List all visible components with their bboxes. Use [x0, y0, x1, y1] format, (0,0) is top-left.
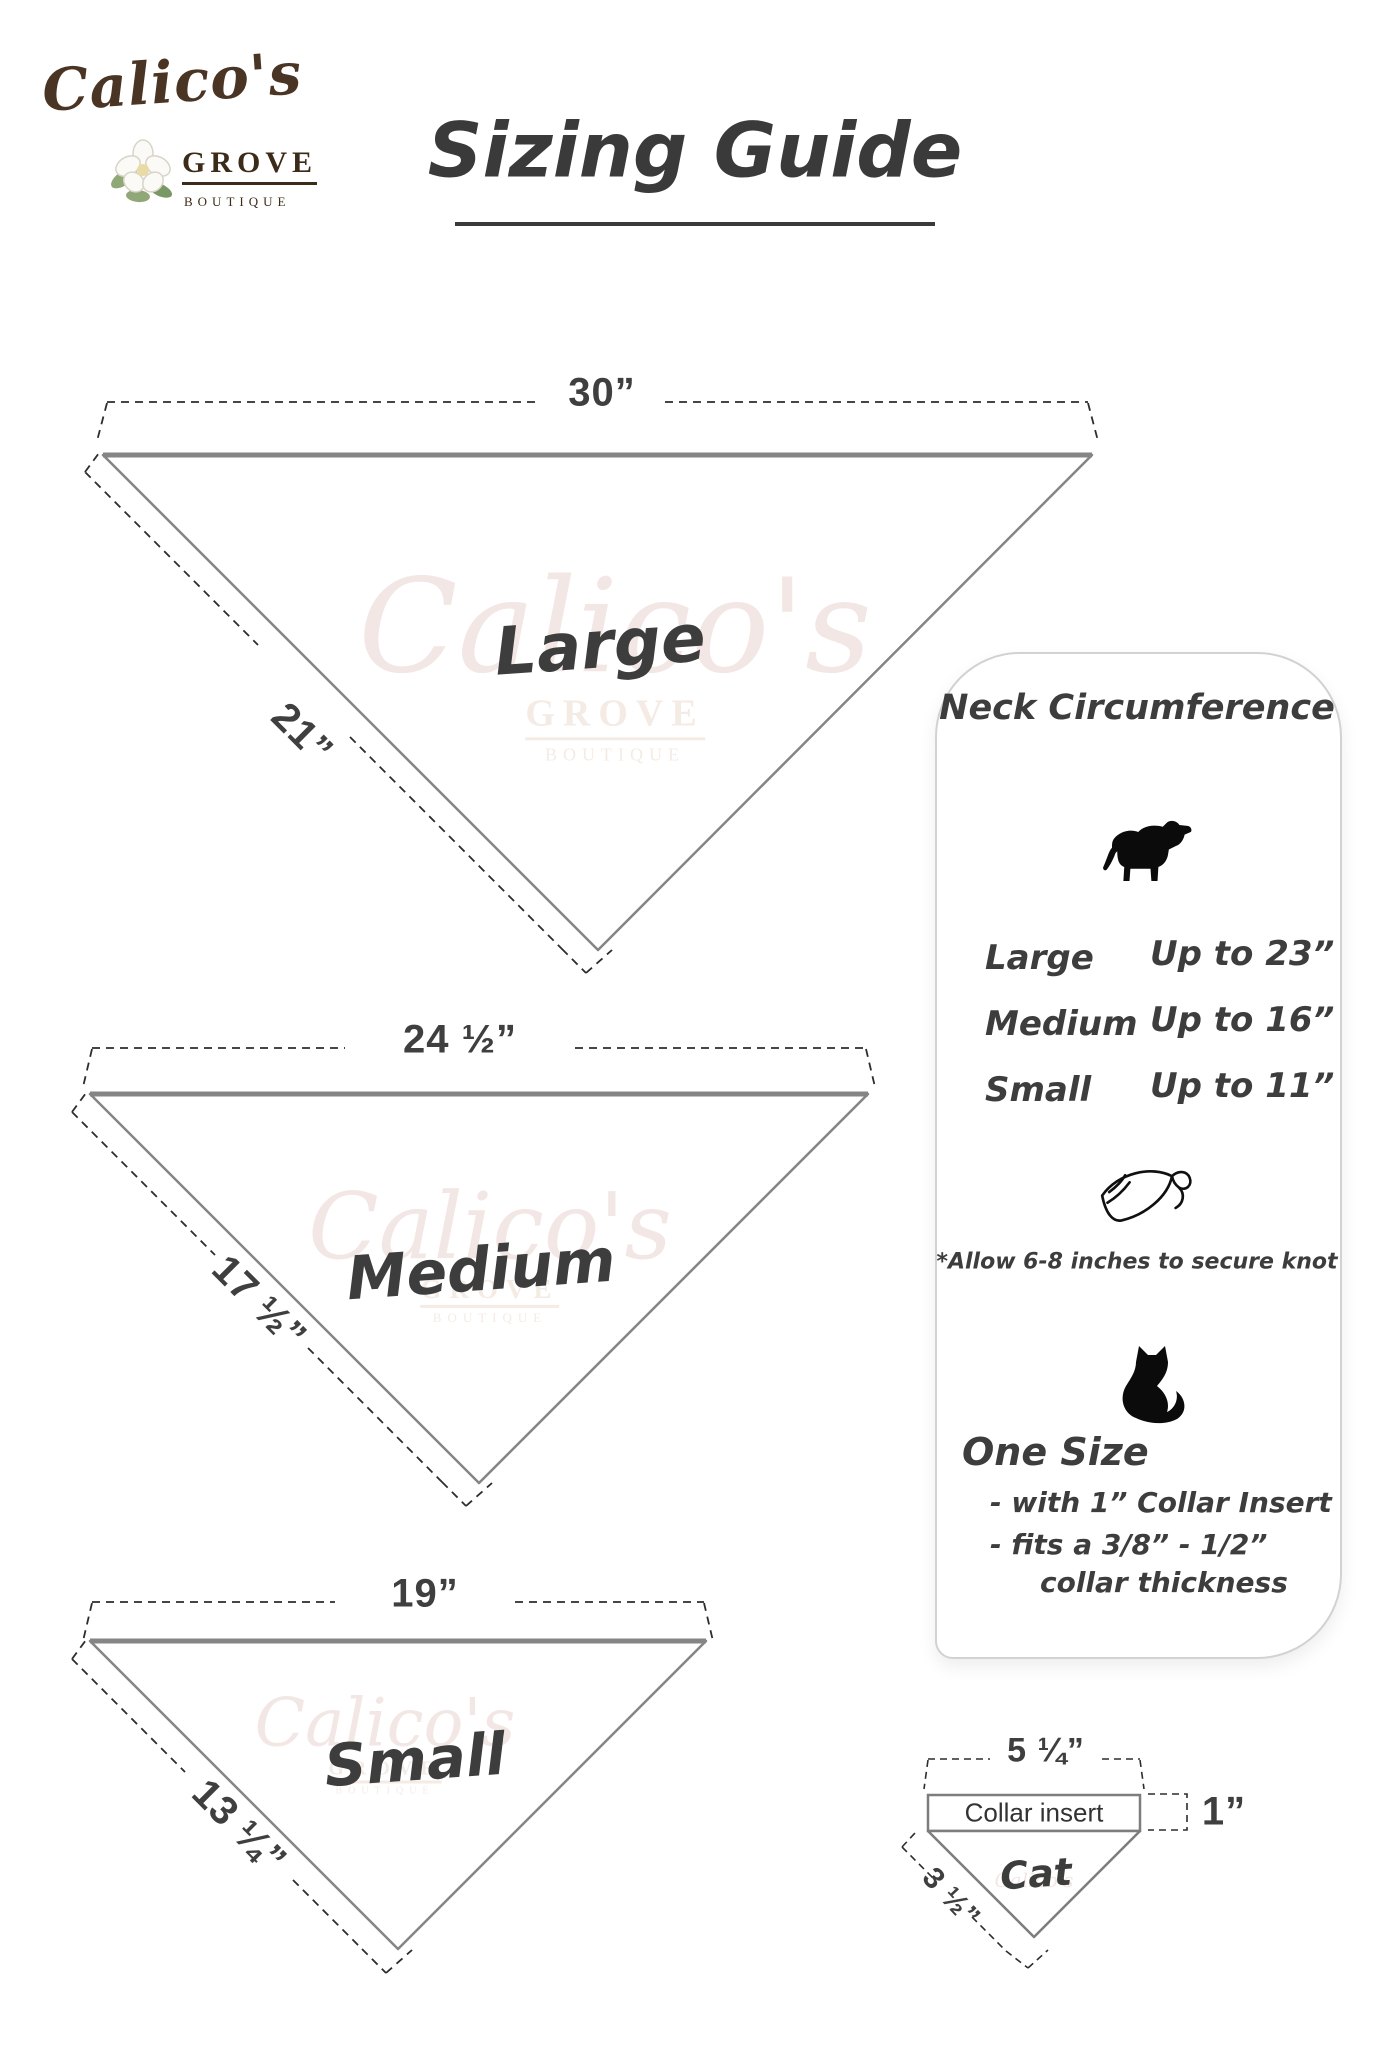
sizing-guide-page: Calico's GROVE BOUTIQUE Calico's GROVE B… [0, 0, 1376, 2060]
row-medium-size: Medium [985, 1004, 1138, 1044]
logo-boutique-text: BOUTIQUE [184, 194, 290, 210]
magnolia-flower-icon [108, 132, 178, 206]
large-top-width: 30” [568, 371, 636, 416]
small-triangle-label: Small [322, 1720, 507, 1800]
one-size-line1: - with 1” Collar Insert [990, 1486, 1332, 1519]
title-underline [455, 222, 935, 226]
bandana-icon [1088, 1158, 1203, 1243]
row-small-value: Up to 11” [1150, 1066, 1334, 1106]
collar-insert-label: Collar insert [965, 1798, 1104, 1829]
row-large-value: Up to 23” [1150, 934, 1334, 974]
page-title: Sizing Guide [428, 106, 963, 195]
one-size-line2: - fits a 3/8” - 1/2” [990, 1528, 1267, 1561]
cat-top-width: 5 ¼” [1007, 1732, 1085, 1771]
panel-title: Neck Circumference [939, 688, 1335, 728]
insert-height-bracket [1148, 1794, 1187, 1830]
cat-insert-height: 1” [1202, 1790, 1246, 1835]
dog-icon [1098, 812, 1203, 894]
cat-icon [1108, 1338, 1196, 1428]
one-size-line3: collar thickness [1040, 1566, 1288, 1599]
row-medium-value: Up to 16” [1150, 1000, 1334, 1040]
row-small-size: Small [985, 1070, 1091, 1110]
medium-top-width: 24 ½” [403, 1018, 517, 1063]
one-size-heading: One Size [962, 1430, 1149, 1474]
small-top-width: 19” [391, 1572, 459, 1617]
row-large-size: Large [985, 938, 1094, 978]
cat-triangle-label: Cat [999, 1850, 1074, 1899]
knot-note: *Allow 6-8 inches to secure knot [936, 1250, 1337, 1275]
logo-grove-text: GROVE [182, 146, 317, 185]
large-triangle-label: Large [492, 599, 708, 691]
